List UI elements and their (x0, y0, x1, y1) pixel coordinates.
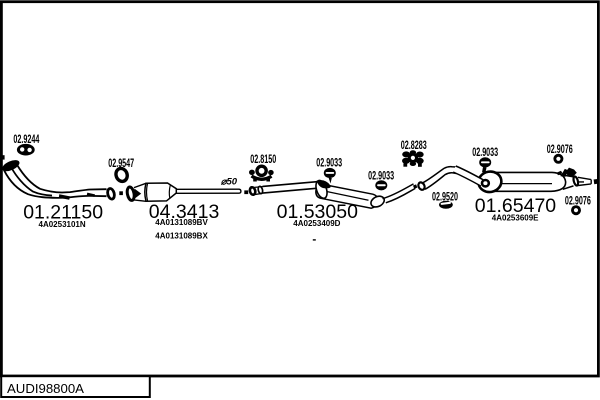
svg-text:02.8150: 02.8150 (250, 153, 276, 166)
svg-text:02.9076: 02.9076 (547, 143, 573, 156)
svg-text:4A0253609E: 4A0253609E (492, 213, 539, 222)
svg-text:02.9244: 02.9244 (13, 133, 39, 146)
svg-text:4A0131089BX: 4A0131089BX (155, 231, 208, 240)
svg-text:4A0131089BV: 4A0131089BV (155, 218, 208, 227)
svg-text:⌀50: ⌀50 (221, 177, 238, 188)
svg-text:4A0253101N: 4A0253101N (39, 220, 86, 229)
svg-text:02.9033: 02.9033 (368, 170, 394, 183)
svg-text:02.9547: 02.9547 (108, 157, 134, 170)
svg-text:02.8283: 02.8283 (401, 139, 427, 152)
svg-text:02.9520: 02.9520 (432, 191, 458, 204)
svg-text:4A0253409D: 4A0253409D (293, 219, 340, 228)
svg-text:02.9033: 02.9033 (472, 146, 498, 159)
svg-text:02.9076: 02.9076 (565, 195, 591, 208)
svg-text:AUDI98800A: AUDI98800A (7, 381, 84, 396)
svg-text:02.9033: 02.9033 (316, 157, 342, 170)
